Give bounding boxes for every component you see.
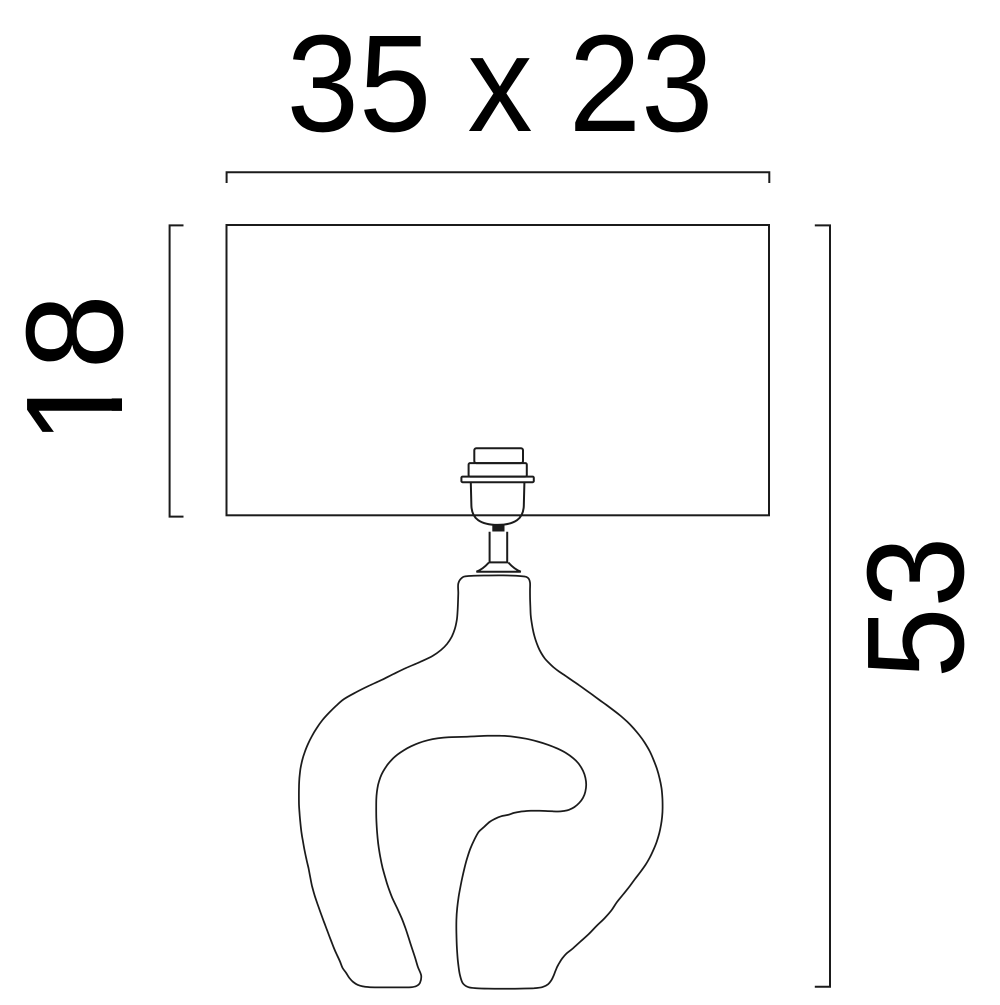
- svg-text:35 x 23: 35 x 23: [287, 8, 714, 161]
- svg-text:18: 18: [0, 294, 151, 445]
- svg-text:53: 53: [839, 537, 993, 679]
